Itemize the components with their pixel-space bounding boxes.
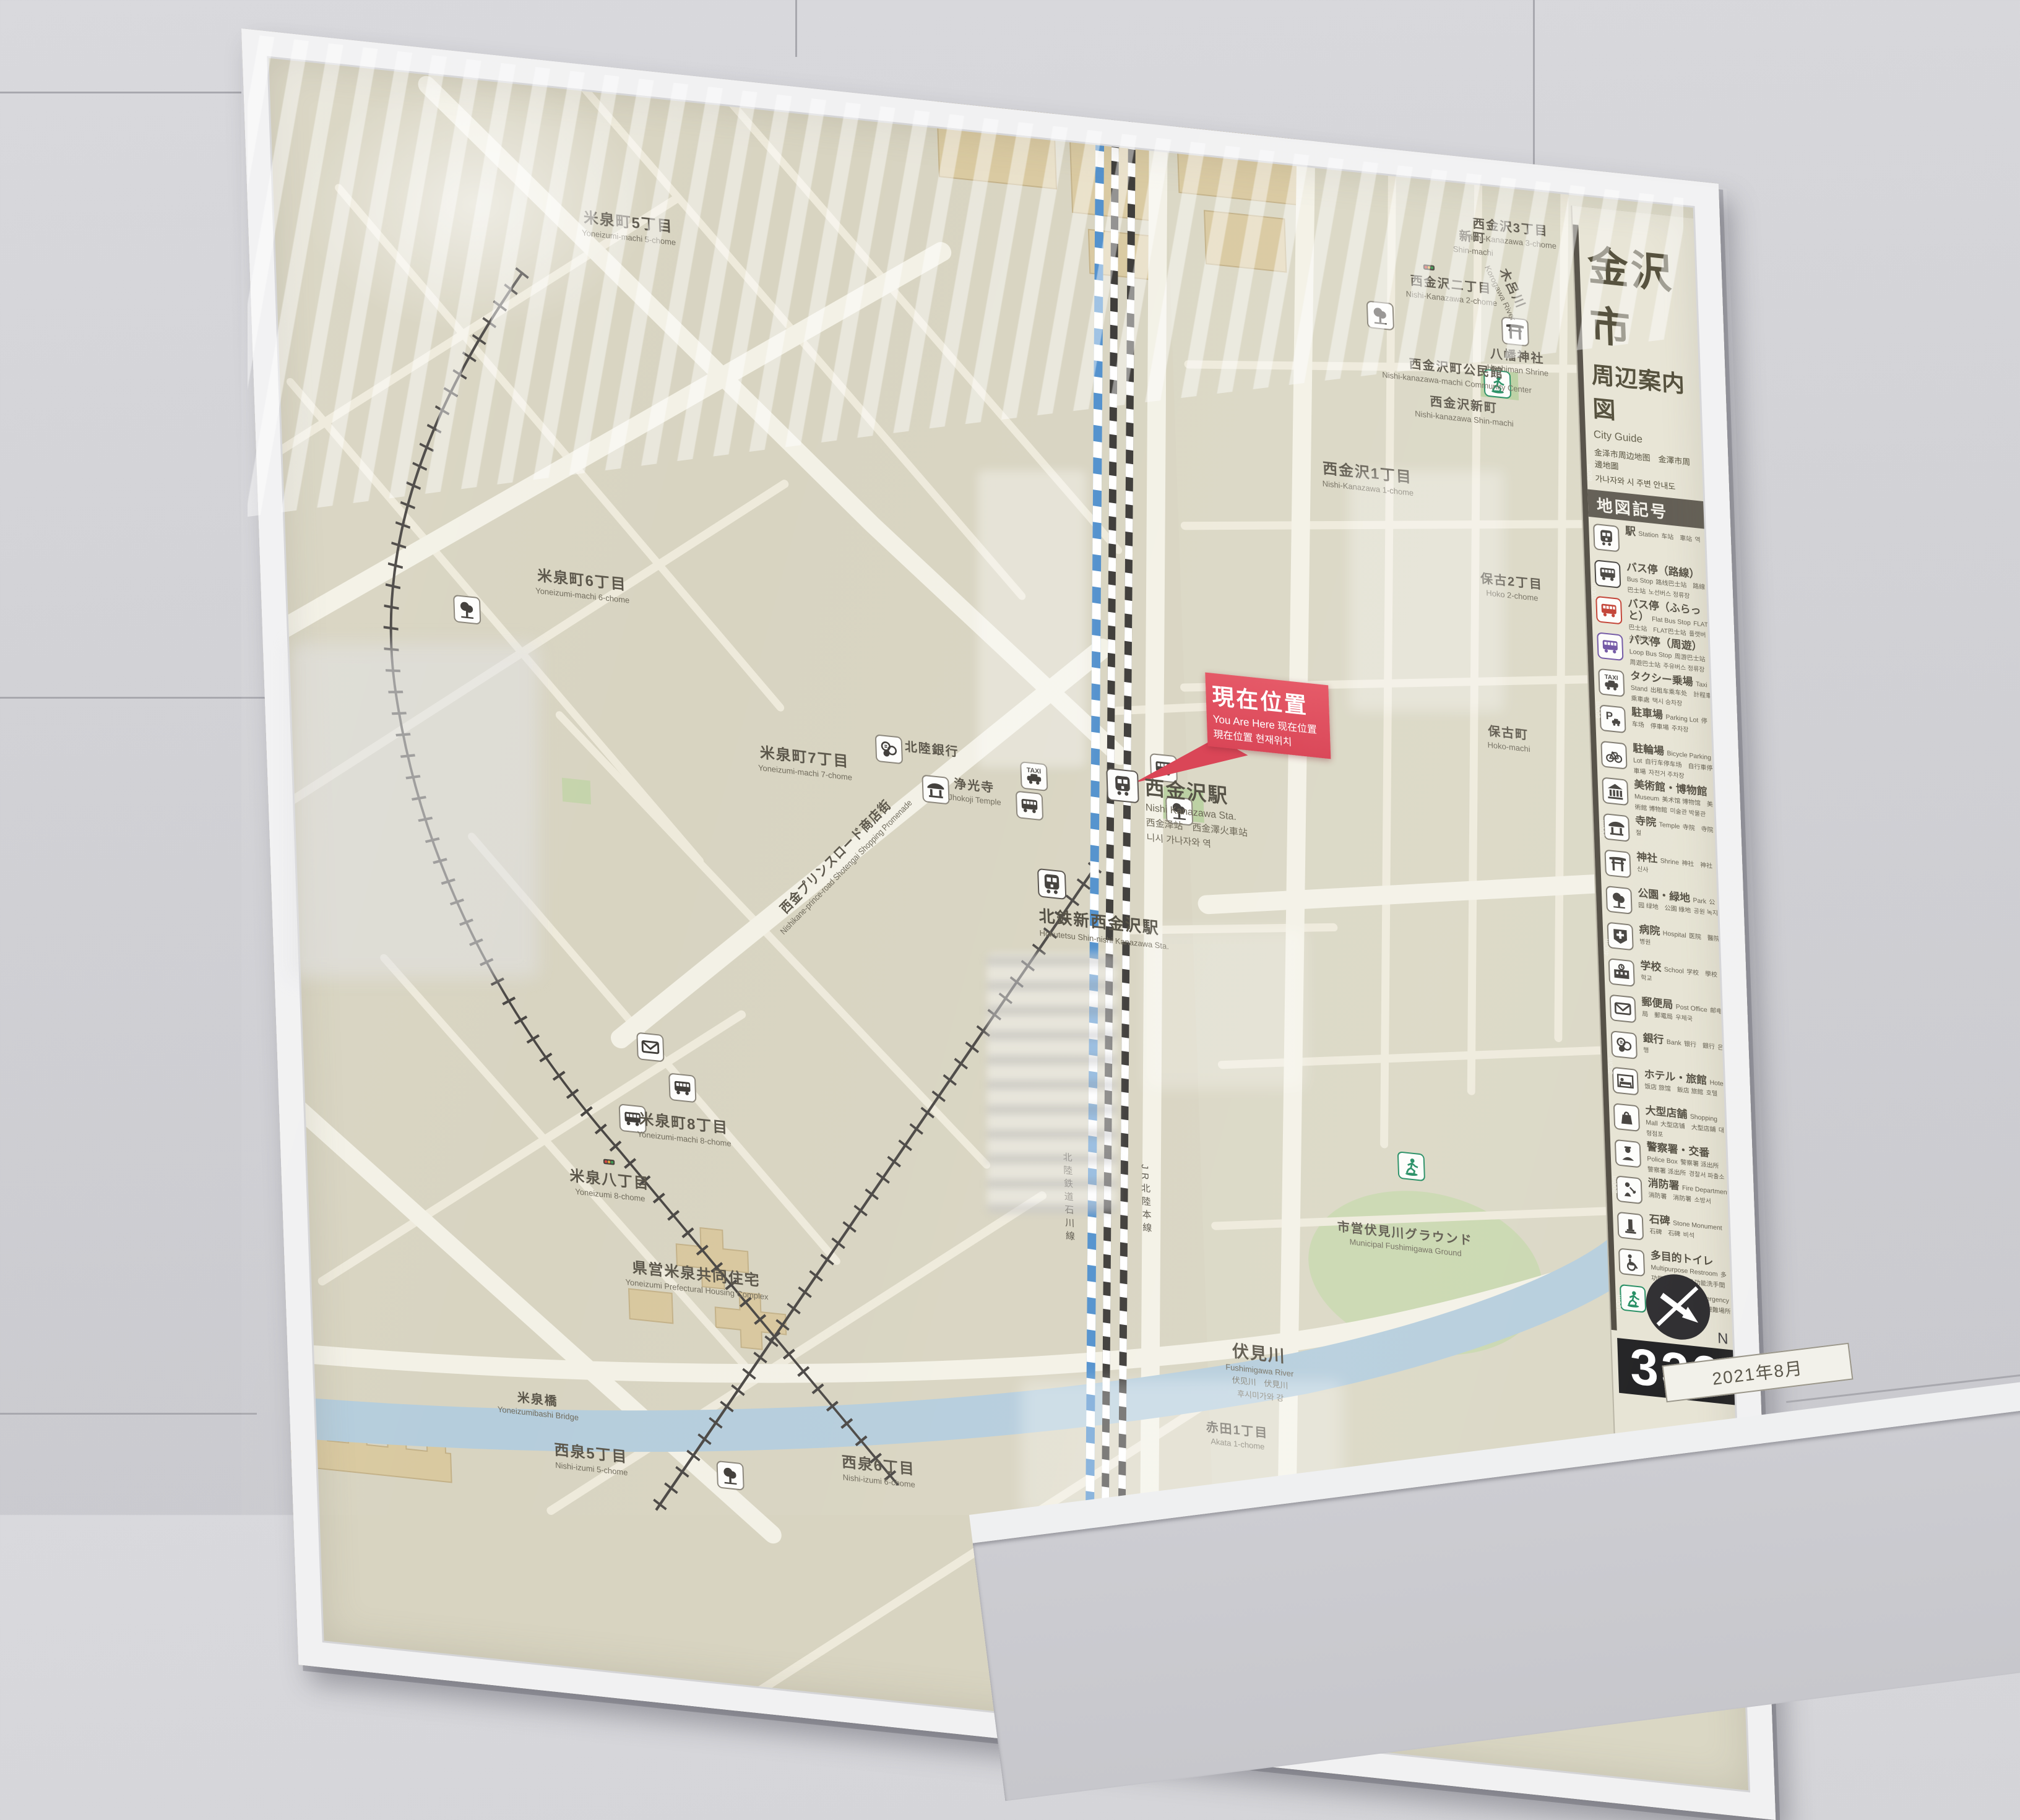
legend-item-label-en: Hotel — [1709, 1079, 1725, 1088]
legend-item-label-en: Fire Department — [1682, 1184, 1729, 1197]
legend-item-icon — [1612, 1067, 1639, 1096]
legend-item-label-en: Bus Stop — [1627, 576, 1654, 586]
legend-item-label-en: Bank — [1667, 1038, 1681, 1048]
legend-item-icon — [1617, 1212, 1644, 1241]
scale-label-800m: 800m — [1586, 460, 1594, 486]
legend-item-label-ko: 소방서 — [1694, 1197, 1711, 1205]
legend-item-label-jp: 郵便局 — [1641, 996, 1673, 1011]
legend-item-icon — [1594, 559, 1621, 589]
legend-item-label-ko: 병원 — [1639, 938, 1651, 946]
train-station-icon — [1106, 768, 1139, 804]
legend-item-icon — [1606, 886, 1633, 915]
map-label-26: JR北陸本線 — [1138, 1163, 1154, 1236]
map-tree-icon — [1366, 300, 1394, 330]
legend-item-label-ko: 역 — [1694, 537, 1701, 544]
legend-item-icon — [1615, 1139, 1641, 1168]
map-label-14: 浄光寺 Jhokoji Temple — [947, 773, 1001, 807]
sign-title-jp: 金沢市 — [1587, 232, 1693, 363]
legend-item-label-en: Stone Monument — [1673, 1219, 1722, 1231]
legend-item-label-zh: 学校 學校 — [1686, 968, 1717, 978]
legend-item-label-en: Flat Bus Stop — [1652, 615, 1691, 627]
legend-item-icon — [1607, 922, 1634, 951]
legend-item-label-en: Museum — [1634, 793, 1659, 803]
station-hokutetsu-shin-nishi-kanazawa: 北鉄新西金沢駅 Hokutetsu Shin-nishi Kanazawa St… — [1037, 868, 1169, 951]
scale-label-600m: 600m — [1594, 697, 1602, 723]
legend-item-label-jp: 駅 — [1625, 525, 1636, 538]
map-bus-icon — [1016, 790, 1043, 821]
legend-item-label-jp: 銀行 — [1642, 1032, 1664, 1046]
map-bank-icon — [875, 734, 903, 764]
map-taxi-icon: TAXI — [1020, 761, 1048, 791]
legend-item-label-jp: 学校 — [1640, 959, 1661, 973]
legend-item-label-jp: 消防署 — [1647, 1177, 1679, 1192]
wall-seam-vertical-1 — [795, 0, 797, 57]
legend-item-label-zh: 银行 銀行 — [1684, 1041, 1715, 1051]
scale-label-700m: 700m — [1590, 579, 1598, 605]
sign-title-block: 金沢市 周辺案内図 City Guide 金泽市周边地图 金澤市周邊地圖 가나자… — [1572, 205, 1705, 501]
wall-seam-vertical-2 — [1533, 0, 1535, 186]
legend-item-label-en: Parking Lot — [1665, 714, 1698, 725]
legend-item-label-en: Post Office — [1676, 1003, 1707, 1014]
legend-item-label-en: Temple — [1659, 821, 1680, 830]
legend-item-label-jp: 駐輪場 — [1633, 742, 1664, 757]
compass-north-label: N — [1717, 1330, 1729, 1348]
scale-label-300m: 300m — [1607, 1053, 1615, 1079]
legend-item-label-ko: 절 — [1636, 829, 1642, 837]
legend-item-label-jp: 駐車場 — [1631, 706, 1663, 722]
legend-item-label-ko: 노선버스 정류장 — [1648, 589, 1690, 600]
wall-seam-horizontal-1 — [0, 92, 241, 93]
map-temple-icon — [922, 775, 949, 805]
legend-item-label-ko: 주차장 — [1672, 725, 1689, 734]
legend-item-label-ko: 신사 — [1637, 866, 1649, 874]
svg-text:TAXI: TAXI — [1027, 767, 1042, 775]
map-tree-icon — [453, 595, 481, 625]
legend-item-label-ko: 학교 — [1641, 975, 1652, 983]
legend-item-label-zh: 神社 神社 — [1681, 860, 1712, 870]
station-nishi-kanazawa: 西金沢駅 Nishi Kanazawa Sta. 西金泽站 西金澤火車站 니시 … — [1106, 768, 1248, 855]
legend-item-icon — [1610, 994, 1636, 1024]
scale-label-500m: 500m — [1599, 816, 1607, 842]
you-are-here-en: You Are Here — [1213, 713, 1275, 731]
legend-item-label-en: Shrine — [1660, 857, 1680, 866]
legend-item-icon — [1608, 958, 1635, 987]
legend-item-icon: TAXI — [1598, 668, 1625, 697]
legend-item-label-ko: 공원 녹지 — [1693, 908, 1718, 917]
legend-item-label-ko: 비석 — [1683, 1231, 1695, 1240]
legend-item-label-ko: 주유버스 정류장 — [1663, 662, 1704, 673]
legend-item-icon — [1595, 596, 1622, 625]
wall-seam-horizontal-2 — [0, 697, 291, 699]
legend-item-label-jp: 神社 — [1636, 851, 1657, 865]
legend-item-icon — [1613, 1103, 1640, 1132]
legend-item-label-zh: 石碑 石碑 — [1649, 1228, 1680, 1238]
legend-item-label-zh: 车站 車站 — [1661, 533, 1692, 543]
legend-item-label-zh: 大型店铺 大型店鋪 — [1660, 1121, 1716, 1134]
legend-item-icon — [1604, 849, 1631, 878]
legend-item-label-jp: 石碑 — [1649, 1213, 1670, 1227]
legend-item-label-jp: 病院 — [1639, 923, 1660, 938]
legend-item-label-en: Park — [1693, 897, 1706, 905]
map-post-icon — [636, 1032, 664, 1063]
map-bus-icon — [668, 1072, 696, 1103]
legend-item-label-zh: 寺院 寺院 — [1683, 824, 1714, 834]
map-label-9: 保古町 Hoko-machi — [1487, 720, 1530, 754]
legend-item-label-jp: 寺院 — [1635, 814, 1656, 829]
legend-item-label-en: School — [1664, 966, 1684, 975]
compass: N — [1633, 1270, 1733, 1349]
legend-item-icon: P — [1599, 704, 1626, 733]
map-shrine-icon — [1501, 316, 1529, 347]
train-station-icon — [1037, 868, 1066, 900]
legend-item-icon — [1593, 524, 1620, 553]
legend-item-label-en: Station — [1638, 530, 1659, 540]
legend-item-icon — [1611, 1030, 1638, 1059]
legend-item-icon — [1597, 632, 1623, 661]
map-tree-icon — [716, 1460, 744, 1491]
svg-text:P: P — [1605, 709, 1613, 722]
legend-item-icon — [1600, 741, 1627, 770]
you-are-here-box: 現在位置 You Are Here 现在位置 現在位置 현재위치 — [1205, 672, 1331, 759]
legend-item-icon — [1602, 777, 1628, 806]
legend-item-label-ko: 택시 승차장 — [1652, 697, 1683, 707]
map-label-19: 伏見川 Fushimigawa River 伏见川 伏見川후시미가와 강 — [1225, 1337, 1295, 1405]
legend-item-label-en: Loop Bus Stop — [1629, 648, 1672, 660]
legend-item-icon — [1603, 813, 1629, 842]
sign-subtitle-jp: 周辺案内図 — [1591, 356, 1696, 434]
legend-item-label-zh: 医院 醫院 — [1689, 933, 1720, 942]
legend-item-label-ko: 미술관 박물관 — [1670, 808, 1706, 818]
legend-item-label-ko: 우체국 — [1675, 1014, 1693, 1023]
legend-item-label-zh: 消防署 消防署 — [1648, 1192, 1691, 1203]
wall-seam-horizontal-3 — [0, 1413, 257, 1415]
scale-label-100m: 100m — [1615, 1290, 1623, 1316]
legend-item-label-ko: 호텔 — [1706, 1090, 1718, 1098]
compass-icon — [1645, 1271, 1711, 1343]
legend-item-label-en: Hospital — [1663, 929, 1686, 939]
you-are-here-jp: 現在位置 — [1212, 683, 1309, 719]
you-are-here-ko: 현재위치 — [1256, 734, 1292, 748]
photo-of-station-area-map: { "sign": { "title_jp": "金沢市", "subtitle… — [0, 0, 2020, 1515]
legend-item-label-ko: 경찰서 파출소 — [1689, 1170, 1725, 1181]
scale-label-200m: 200m — [1611, 1171, 1619, 1197]
legend-item-icon — [1616, 1175, 1642, 1204]
scale-label-400m: 400m — [1602, 934, 1610, 960]
legend-item-label-ko: 자전거 주차장 — [1649, 769, 1685, 780]
legend-item-label-en: Police Box — [1647, 1155, 1678, 1165]
map-shelter-icon — [1397, 1151, 1425, 1181]
